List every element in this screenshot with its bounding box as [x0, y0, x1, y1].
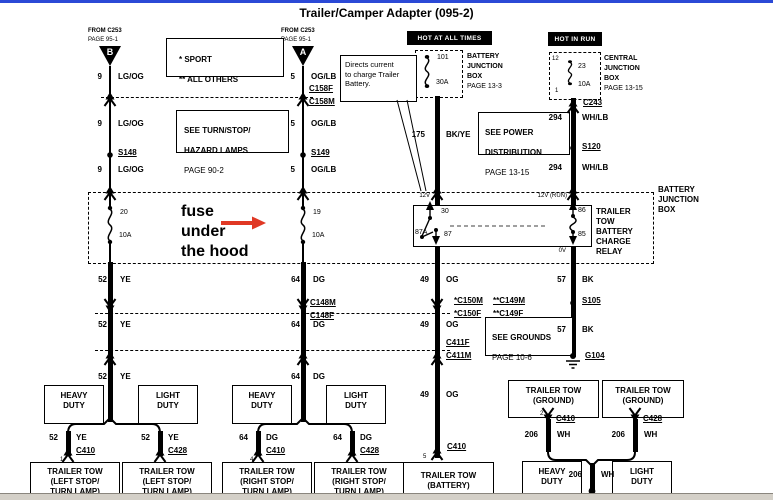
fuse-23-glyph: [568, 60, 572, 85]
window-bottom-border: [0, 493, 773, 500]
red-arrow: [221, 217, 266, 230]
splice-dots: [107, 145, 576, 306]
relay-pin-87: 87: [444, 231, 452, 238]
callout-pointer-lines: [397, 100, 426, 191]
relay-pin-87a: 87A: [415, 229, 427, 236]
fuse-20-glyph: [108, 206, 112, 244]
split-brackets: [68, 418, 635, 466]
relay-pin-85: 85: [578, 231, 586, 238]
wiring-diagram-page: Trailer/Camper Adapter (095-2) FROM C253…: [0, 0, 773, 500]
fuse-101-glyph: [425, 55, 429, 88]
fuse-19-glyph: [301, 206, 305, 244]
connector-chevrons-down: [105, 299, 641, 422]
relay-pin-86: 86: [578, 207, 586, 214]
relay-pin-30: 30: [441, 208, 449, 215]
ground-g104-symbol: [566, 353, 580, 368]
diagram-artwork: [0, 0, 773, 500]
connector-chevrons-up: [63, 92, 579, 462]
